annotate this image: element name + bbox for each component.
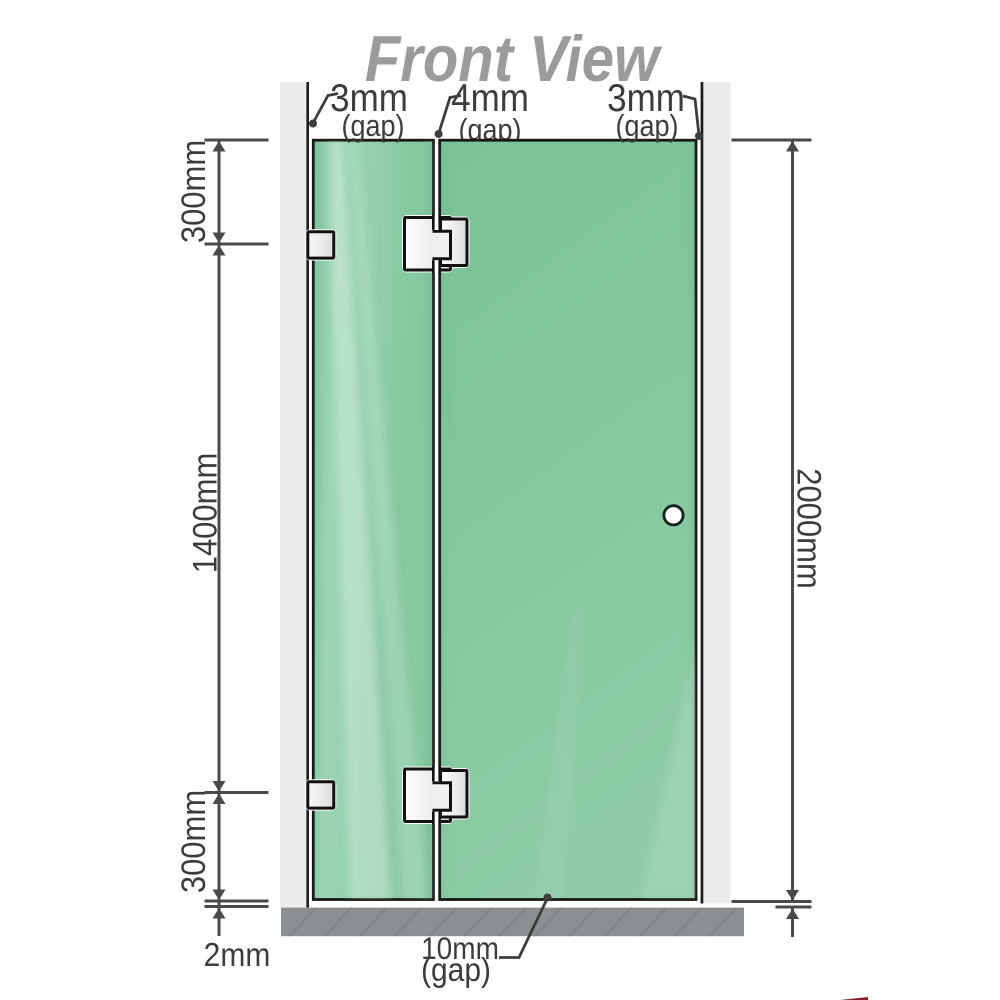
svg-text:300mm: 300mm — [173, 790, 212, 893]
svg-text:(gap): (gap) — [421, 950, 491, 988]
svg-text:(gap): (gap) — [615, 110, 678, 144]
svg-text:(gap): (gap) — [341, 110, 404, 144]
svg-text:1400mm: 1400mm — [185, 453, 224, 574]
svg-text:2000mm: 2000mm — [790, 468, 829, 589]
svg-text:2mm: 2mm — [204, 935, 271, 973]
svg-text:4mm: 4mm — [451, 75, 529, 119]
svg-text:300mm: 300mm — [173, 140, 212, 243]
